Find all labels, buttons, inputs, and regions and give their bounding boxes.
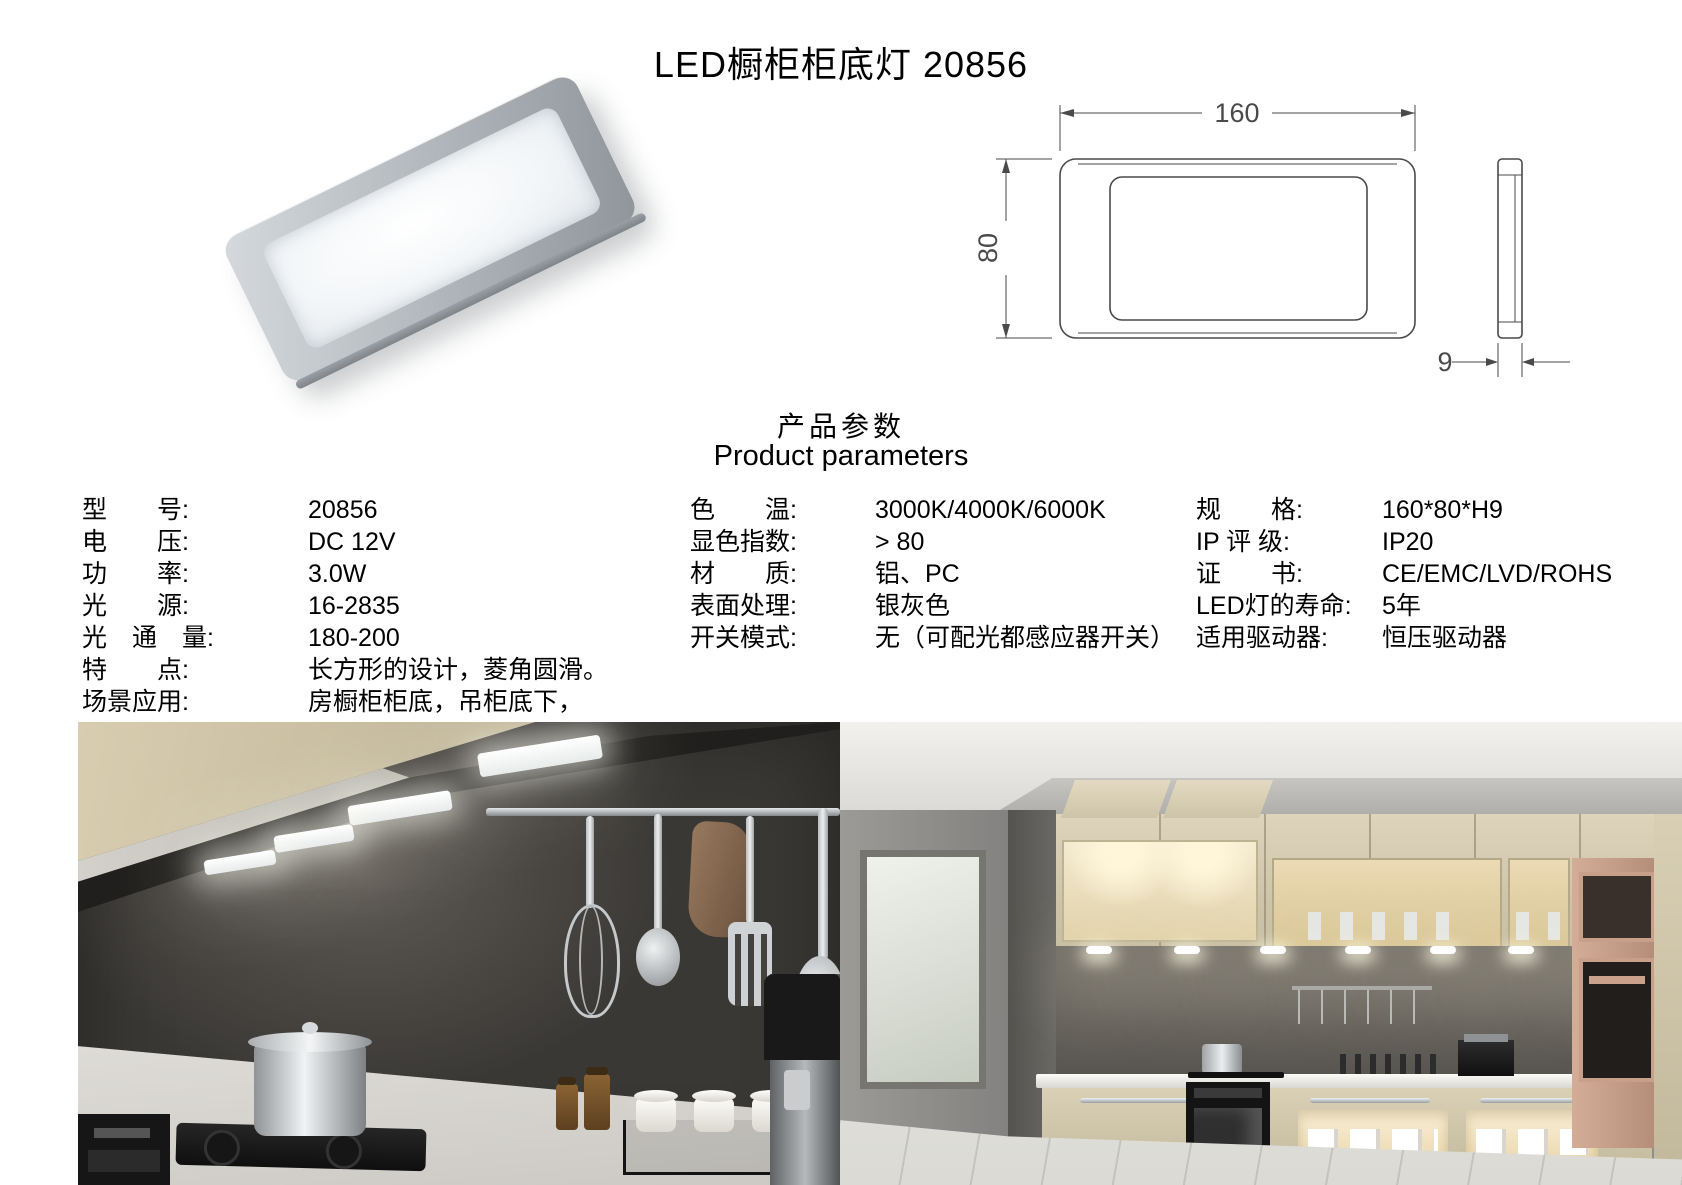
tall-cabinet [1654,814,1682,1170]
spec-label: LED灯的寿命: [1196,590,1352,622]
spec-value: 铝、PC [875,558,960,590]
condiment-pot [694,1098,734,1132]
spec-value: 20856 [308,494,378,526]
spec-label: 场景应用: [82,686,189,718]
cup-row [1516,912,1560,940]
spec-label: 光 通 量: [82,622,214,654]
spec-column-3: 规 格:160*80*H9 IP 评 级:IP20 证 书:CE/EMC/LVD… [1196,494,1352,654]
spec-label: 特 点: [82,654,189,686]
ladle-handle [654,814,662,932]
spec-value: 房橱柜柜底，吊柜底下， [308,686,583,718]
whisk-handle [586,816,594,908]
drawer-handle [1310,1098,1430,1103]
utensil-rail [486,808,840,816]
under-cabinet-light [1174,946,1200,954]
spec-row-lifespan: LED灯的寿命:5年 [1196,590,1352,622]
spec-label: 显色指数: [690,526,797,558]
spec-row-power: 功 率:3.0W [82,558,214,590]
spec-label: 型 号: [82,494,189,526]
under-cabinet-light [1345,946,1371,954]
spec-value: 16-2835 [308,590,400,622]
cooktop [1188,1072,1284,1078]
spec-label: 电 压: [82,526,189,558]
spec-label: IP 评 级: [1196,526,1290,558]
spec-value: 3000K/4000K/6000K [875,494,1106,526]
spec-value: 无（可配光都感应器开关） [875,622,1175,654]
under-cabinet-light [1430,946,1456,954]
spec-row-ip-rating: IP 评 级:IP20 [1196,526,1352,558]
open-cabinet-interior [1062,840,1258,942]
lifted-cabinet-door [1061,780,1171,818]
spice-jar [556,1084,578,1130]
spec-value: IP20 [1382,526,1433,558]
spec-value: 160*80*H9 [1382,494,1503,526]
spec-row-light-source: 光 源:16-2835 [82,590,214,622]
spec-label: 证 书: [1196,558,1303,590]
spec-row-model: 型 号:20856 [82,494,214,526]
spec-row-luminous-flux: 光 通 量:180-200 [82,622,214,654]
section-heading-zh: 产品参数 [0,405,1682,445]
drawer-handle [1480,1098,1580,1103]
spec-label: 适用驱动器: [1196,622,1328,654]
side-view-outline [1498,159,1522,338]
spec-value: > 80 [875,526,924,558]
hanging-utensils [1298,990,1426,1024]
front-view-window [1110,177,1367,320]
spec-label: 功 率: [82,558,189,590]
ladle [636,928,680,986]
kitchen-towel [687,821,751,939]
drawer-handle [1080,1098,1200,1103]
spec-value: 3.0W [308,558,366,590]
condiment-pot [636,1098,676,1132]
dimension-lines [996,105,1570,377]
spec-row-cri: 显色指数:> 80 [690,526,797,558]
spatula-handle [746,816,754,924]
product-photo [185,78,665,393]
spec-row-surface-finish: 表面处理:银灰色 [690,590,797,622]
cup-row [1308,912,1460,940]
led-panel-diffuser [260,104,604,351]
spec-row-driver: 适用驱动器:恒压驱动器 [1196,622,1352,654]
spec-label: 色 温: [690,494,797,526]
whisk [564,904,620,1018]
spec-row-application: 场景应用:房橱柜柜底，吊柜底下， [82,686,214,718]
application-photo-cream-kitchen [840,722,1682,1185]
spec-row-voltage: 电 压:DC 12V [82,526,214,558]
spec-value: DC 12V [308,526,396,558]
spec-value: 长方形的设计，菱角圆滑。 [308,654,608,686]
lifted-cabinet-door [1163,780,1273,818]
led-panel-body [219,71,640,387]
spec-row-size: 规 格:160*80*H9 [1196,494,1352,526]
window [860,850,986,1089]
under-cabinet-light [1086,946,1112,954]
spec-value: 银灰色 [875,590,950,622]
stock-pot [254,1044,366,1136]
technical-drawing: 160 80 9 [940,85,1682,395]
under-cabinet-light [1508,946,1534,954]
front-view-outline [1060,159,1415,338]
dim-height-label: 80 [973,233,1003,263]
spec-label: 表面处理: [690,590,797,622]
built-in-microwave [1579,872,1655,942]
spec-row-material: 材 质:铝、PC [690,558,797,590]
pot [1202,1044,1242,1074]
spec-row-color-temp: 色 温:3000K/4000K/6000K [690,494,797,526]
spec-column-1: 型 号:20856 电 压:DC 12V 功 率:3.0W 光 源:16-283… [82,494,214,718]
dimension-arrows [1002,109,1534,366]
spice-jar [584,1074,610,1130]
spec-column-2: 色 温:3000K/4000K/6000K 显色指数:> 80 材 质:铝、PC… [690,494,797,654]
datasheet-page: LED橱柜柜底灯 20856 160 80 [0,0,1682,1185]
coffee-machine [770,974,840,1185]
spec-row-features: 特 点:长方形的设计，菱角圆滑。 [82,654,214,686]
spec-value: 恒压驱动器 [1382,622,1507,654]
spice-rack [1340,1054,1444,1074]
built-in-oven [78,1114,170,1185]
spec-label: 光 源: [82,590,189,622]
spec-label: 开关模式: [690,622,797,654]
spec-value: CE/EMC/LVD/ROHS [1382,558,1612,590]
serving-spoon-handle [818,808,828,960]
spec-value: 5年 [1382,590,1421,622]
application-photo-dark-kitchen [78,722,840,1185]
dim-width-label: 160 [1214,98,1259,128]
spec-row-certificates: 证 书:CE/EMC/LVD/ROHS [1196,558,1352,590]
drawing-outlines [1060,159,1522,338]
dim-thickness-label: 9 [1437,347,1452,377]
spec-label: 规 格: [1196,494,1303,526]
spec-label: 材 质: [690,558,797,590]
wall-oven [1579,958,1655,1082]
countertop [1036,1074,1652,1088]
espresso-machine [1458,1040,1514,1076]
spec-row-switch-mode: 开关模式:无（可配光都感应器开关） [690,622,797,654]
section-heading-en: Product parameters [0,440,1682,473]
under-cabinet-light [1260,946,1286,954]
spec-value: 180-200 [308,622,400,654]
